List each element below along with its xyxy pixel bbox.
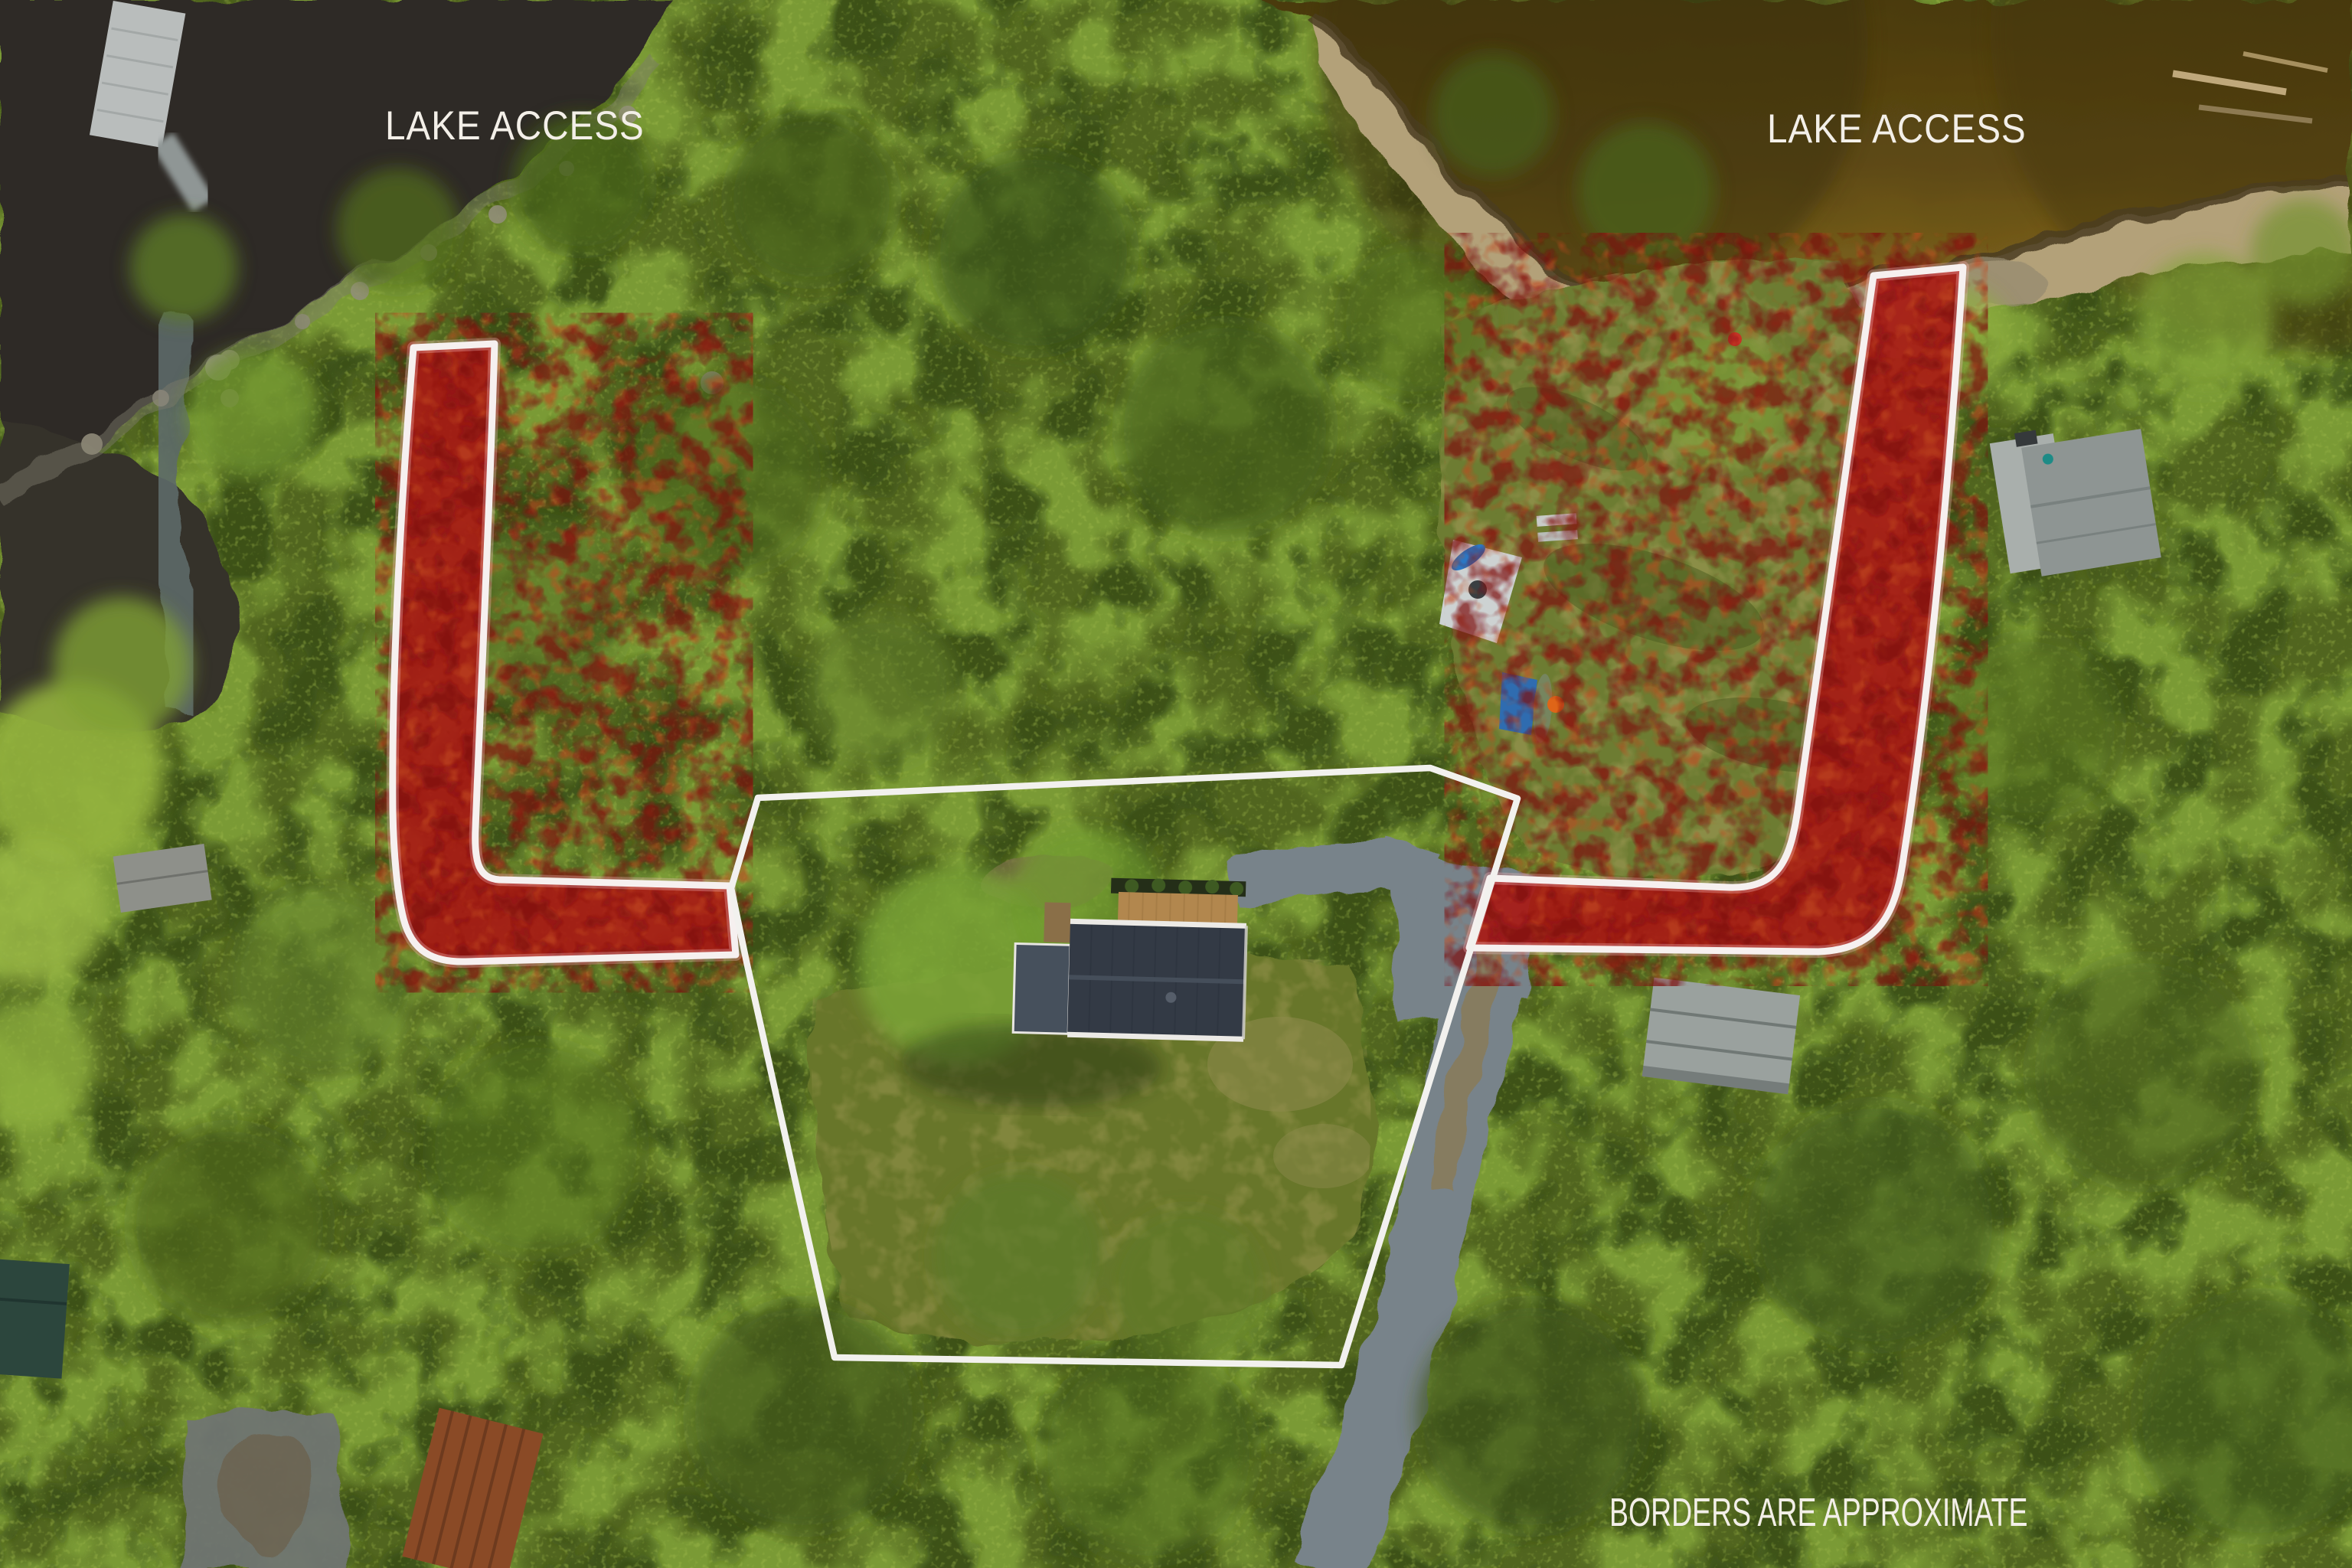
gray-cabin xyxy=(1642,978,1800,1094)
label-borders-approximate: BORDERS ARE APPROXIMATE xyxy=(1609,1490,2027,1536)
aerial-photo-canvas xyxy=(0,0,2352,1568)
orange-gear xyxy=(1547,696,1564,713)
label-lake-access-left: LAKE ACCESS xyxy=(385,103,645,149)
teal-cabin xyxy=(0,1259,70,1379)
stair-landing xyxy=(1044,902,1070,942)
annex-roof xyxy=(1013,943,1070,1034)
aerial-photo: LAKE ACCESS LAKE ACCESS BORDERS ARE APPR… xyxy=(0,0,2352,1568)
soil-patch xyxy=(222,1432,314,1554)
label-lake-access-right: LAKE ACCESS xyxy=(1767,106,2027,152)
red-chair xyxy=(1728,332,1742,346)
